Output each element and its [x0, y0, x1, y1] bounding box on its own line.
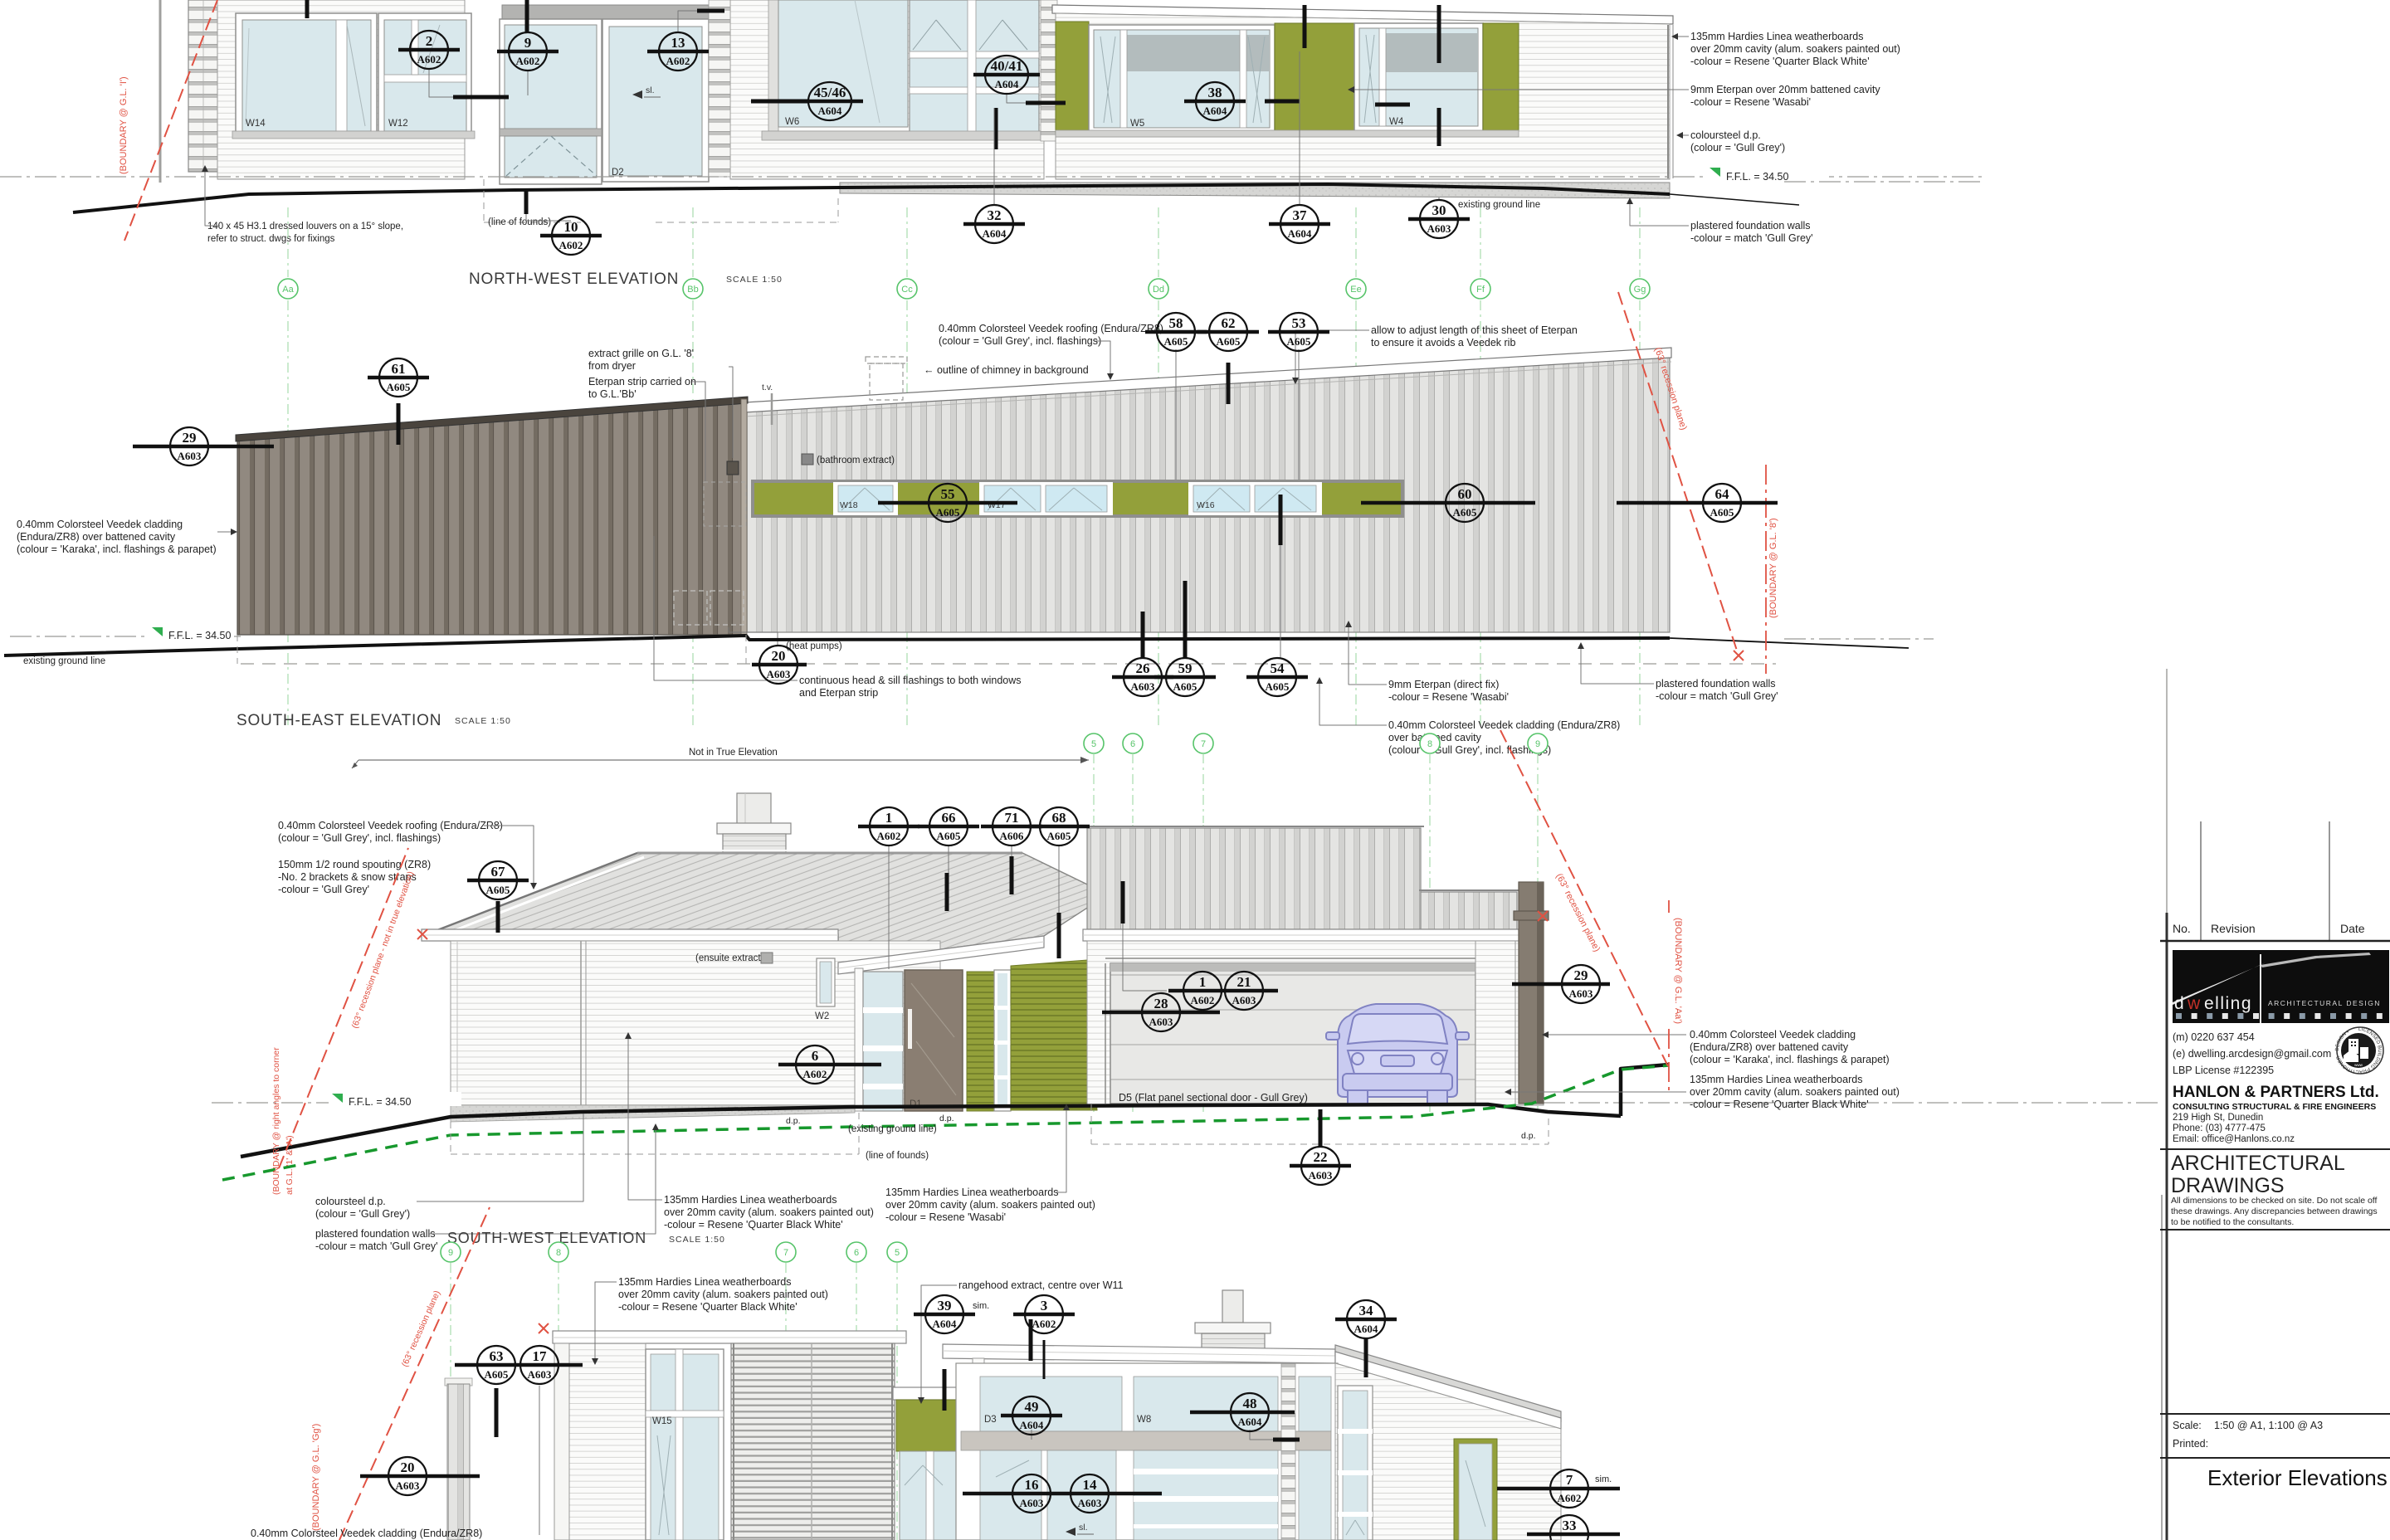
svg-text:A602: A602 — [516, 55, 540, 67]
svg-text:13: 13 — [671, 35, 685, 51]
svg-text:Not in True Elevation: Not in True Elevation — [689, 748, 778, 758]
svg-text:A602: A602 — [1191, 994, 1215, 1006]
svg-text:63: 63 — [490, 1348, 504, 1364]
svg-text:3: 3 — [1041, 1298, 1048, 1313]
svg-text:0.40mm Colorsteel Veedek cladd: 0.40mm Colorsteel Veedek cladding — [17, 519, 183, 530]
svg-text:219 High St, Dunedin: 219 High St, Dunedin — [2173, 1113, 2263, 1123]
svg-text:(BOUNDARY @ G.L. '8'): (BOUNDARY @ G.L. '8') — [1768, 518, 1778, 618]
svg-text:(BOUNDARY @ right angles to co: (BOUNDARY @ right angles to corner — [271, 1047, 281, 1195]
svg-text:(colour = 'Gull Grey', incl. f: (colour = 'Gull Grey', incl. flashings) — [939, 335, 1101, 347]
svg-text:Dd: Dd — [1153, 285, 1164, 295]
svg-text:135mm Hardies Linea weatherboa: 135mm Hardies Linea weatherboards — [664, 1194, 836, 1206]
svg-text:0.40mm Colorsteel Veedek cladd: 0.40mm Colorsteel Veedek cladding (Endur… — [251, 1528, 482, 1539]
svg-text:A605: A605 — [1173, 680, 1197, 693]
svg-text:d.p.: d.p. — [786, 1116, 801, 1126]
svg-text:F.F.L. = 34.50: F.F.L. = 34.50 — [168, 630, 231, 641]
svg-text:A604: A604 — [995, 78, 1019, 90]
svg-text:5: 5 — [895, 1248, 900, 1258]
svg-text:6: 6 — [1130, 739, 1135, 749]
svg-text:d.p.: d.p. — [939, 1114, 954, 1123]
svg-text:8: 8 — [1427, 739, 1432, 749]
svg-text:Cc: Cc — [901, 285, 913, 295]
svg-text:over 20mm cavity (alum. soaker: over 20mm cavity (alum. soakers painted … — [1690, 43, 1900, 55]
svg-text:A603: A603 — [178, 450, 202, 462]
svg-text:67: 67 — [491, 864, 506, 880]
svg-text:21: 21 — [1237, 974, 1251, 990]
svg-text:A603: A603 — [396, 1479, 420, 1492]
svg-text:d: d — [2174, 994, 2185, 1013]
svg-text:-colour = Resene 'Wasabi': -colour = Resene 'Wasabi' — [885, 1211, 1006, 1223]
svg-text:www: www — [2354, 1063, 2363, 1067]
svg-text:No.: No. — [2173, 922, 2191, 935]
svg-text:to ensure it avoids a Veedek r: to ensure it avoids a Veedek rib — [1371, 337, 1515, 348]
svg-text:(colour = 'Gull Grey'): (colour = 'Gull Grey') — [1690, 142, 1785, 154]
svg-text:16: 16 — [1025, 1477, 1039, 1493]
svg-text:A605: A605 — [1217, 335, 1241, 348]
svg-text:Phone: (03) 4777-475: Phone: (03) 4777-475 — [2173, 1123, 2266, 1133]
svg-text:A605: A605 — [485, 1368, 509, 1381]
svg-text:A603: A603 — [1232, 994, 1256, 1006]
svg-text:Eterpan strip carried on: Eterpan strip carried on — [588, 376, 696, 387]
svg-text:A602: A602 — [877, 830, 901, 842]
svg-text:(existing ground line): (existing ground line) — [848, 1124, 937, 1134]
svg-text:DRAWINGS: DRAWINGS — [2171, 1174, 2285, 1197]
svg-text:-colour = Resene 'Quarter Blac: -colour = Resene 'Quarter Black White' — [1690, 56, 1870, 67]
svg-text:A604: A604 — [983, 227, 1007, 240]
svg-text:existing ground line: existing ground line — [1458, 200, 1540, 210]
svg-text:coloursteel d.p.: coloursteel d.p. — [315, 1196, 386, 1207]
svg-text:A604: A604 — [933, 1318, 957, 1330]
svg-text:14: 14 — [1083, 1477, 1098, 1493]
svg-text:SOUTH-WEST ELEVATION: SOUTH-WEST ELEVATION — [447, 1230, 646, 1246]
svg-text:SOUTH-EAST ELEVATION: SOUTH-EAST ELEVATION — [237, 712, 441, 729]
svg-text:0.40mm Colorsteel Veedek cladd: 0.40mm Colorsteel Veedek cladding (Endur… — [1388, 719, 1620, 731]
svg-text:-colour = match 'Gull Grey': -colour = match 'Gull Grey' — [1690, 232, 1813, 244]
svg-text:SCALE 1:50: SCALE 1:50 — [669, 1235, 725, 1245]
svg-text:(colour = 'Gull Grey', incl. f: (colour = 'Gull Grey', incl. flashings) — [1388, 744, 1551, 756]
svg-text:A602: A602 — [417, 53, 441, 66]
svg-text:coloursteel d.p.: coloursteel d.p. — [1690, 129, 1761, 141]
svg-text:5: 5 — [1091, 739, 1096, 749]
svg-text:and Eterpan strip: and Eterpan strip — [799, 687, 878, 699]
svg-text:7: 7 — [783, 1248, 788, 1258]
svg-text:39: 39 — [938, 1298, 952, 1313]
svg-text:A605: A605 — [1453, 506, 1477, 519]
svg-text:22: 22 — [1314, 1149, 1328, 1165]
svg-text:A603: A603 — [1020, 1497, 1044, 1509]
svg-text:68: 68 — [1052, 810, 1066, 826]
svg-text:sl.: sl. — [646, 85, 655, 95]
svg-text:(e) dwelling.arcdesign@gmail.c: (e) dwelling.arcdesign@gmail.com — [2173, 1048, 2331, 1060]
svg-text:NORTH-WEST ELEVATION: NORTH-WEST ELEVATION — [469, 270, 679, 288]
svg-text:32: 32 — [988, 207, 1002, 223]
svg-text:-colour = Resene 'Wasabi': -colour = Resene 'Wasabi' — [1690, 96, 1811, 108]
svg-text:33: 33 — [1563, 1518, 1577, 1533]
svg-text:A602: A602 — [1558, 1492, 1582, 1504]
svg-text:135mm Hardies Linea weatherboa: 135mm Hardies Linea weatherboards — [885, 1187, 1058, 1198]
svg-text:17: 17 — [533, 1348, 548, 1364]
svg-text:71: 71 — [1005, 810, 1019, 826]
svg-text:Aa: Aa — [282, 285, 294, 295]
svg-text:-colour = 'Gull Grey': -colour = 'Gull Grey' — [278, 884, 369, 895]
svg-text:ARCHITECTURAL DESIGN: ARCHITECTURAL DESIGN — [2268, 999, 2381, 1007]
svg-text:A604: A604 — [1288, 227, 1312, 240]
svg-text:(Endura/ZR8) over battened cav: (Endura/ZR8) over battened cavity — [17, 531, 176, 543]
svg-text:0.40mm Colorsteel Veedek cladd: 0.40mm Colorsteel Veedek cladding — [1690, 1029, 1856, 1040]
svg-text:10: 10 — [564, 219, 578, 235]
svg-text:W5: W5 — [1130, 119, 1144, 129]
svg-text:F.F.L. = 34.50: F.F.L. = 34.50 — [349, 1096, 411, 1108]
svg-text:A605: A605 — [936, 506, 960, 519]
svg-text:(colour = 'Karaka', incl. flas: (colour = 'Karaka', incl. flashings & pa… — [1690, 1054, 1890, 1065]
svg-text:66: 66 — [942, 810, 956, 826]
svg-text:Printed:: Printed: — [2173, 1438, 2208, 1450]
svg-text:6: 6 — [854, 1248, 859, 1258]
svg-text:A603: A603 — [1078, 1497, 1102, 1509]
svg-text:CONSULTING STRUCTURAL & FIRE E: CONSULTING STRUCTURAL & FIRE ENGINEERS — [2173, 1102, 2376, 1112]
svg-text:plastered foundation walls: plastered foundation walls — [1690, 220, 1811, 231]
svg-text:59: 59 — [1178, 660, 1193, 676]
svg-text:continuous head & sill flashin: continuous head & sill flashings to both… — [799, 675, 1022, 686]
svg-text:W18: W18 — [840, 500, 858, 510]
svg-text:over 20mm cavity (alum. soaker: over 20mm cavity (alum. soakers painted … — [1690, 1086, 1900, 1098]
svg-text:sim.: sim. — [973, 1301, 989, 1311]
svg-text:(colour = 'Karaka', incl. flas: (colour = 'Karaka', incl. flashings & pa… — [17, 543, 217, 555]
svg-text:sim.: sim. — [1595, 1474, 1612, 1484]
svg-text:20: 20 — [401, 1460, 415, 1475]
svg-text:(line of founds): (line of founds) — [488, 217, 551, 227]
svg-text:A604: A604 — [1354, 1323, 1378, 1335]
svg-text:d.p.: d.p. — [1521, 1131, 1536, 1141]
svg-text:55: 55 — [941, 486, 955, 502]
svg-text:9mm Eterpan over 20mm battened: 9mm Eterpan over 20mm battened cavity — [1690, 84, 1880, 95]
svg-text:A604: A604 — [1238, 1416, 1262, 1428]
svg-text:A605: A605 — [1164, 335, 1188, 348]
svg-text:D5 (Flat panel sectional door: D5 (Flat panel sectional door - Gull Gre… — [1119, 1092, 1308, 1104]
svg-text:140 x 45 H3.1 dressed louvers: 140 x 45 H3.1 dressed louvers on a 15° s… — [207, 222, 403, 231]
svg-text:Scale:: Scale: — [2173, 1420, 2202, 1431]
svg-text:A605: A605 — [1266, 680, 1290, 693]
svg-text:A604: A604 — [818, 105, 842, 117]
svg-text:(BOUNDARY @ G.L. 'I'): (BOUNDARY @ G.L. 'I') — [119, 76, 129, 174]
svg-text:w: w — [2187, 994, 2202, 1013]
svg-text:-colour = Resene 'Quarter Blac: -colour = Resene 'Quarter Black White' — [1690, 1099, 1869, 1110]
svg-text:Date: Date — [2340, 922, 2365, 935]
svg-text:W16: W16 — [1197, 500, 1215, 510]
svg-text:A602: A602 — [803, 1068, 827, 1080]
svg-text:A603: A603 — [1569, 987, 1593, 1000]
svg-text:A602: A602 — [559, 239, 583, 251]
svg-text:-colour = Resene 'Wasabi': -colour = Resene 'Wasabi' — [1388, 691, 1509, 703]
svg-text:7: 7 — [1566, 1472, 1573, 1488]
svg-text:58: 58 — [1169, 315, 1183, 331]
svg-text:plastered foundation walls: plastered foundation walls — [1656, 678, 1776, 690]
svg-text:A602: A602 — [1032, 1318, 1056, 1330]
svg-text:9: 9 — [524, 35, 532, 51]
svg-text:Gg: Gg — [1634, 285, 1646, 295]
svg-text:A605: A605 — [486, 884, 510, 896]
svg-text:A603: A603 — [1149, 1016, 1173, 1028]
svg-text:64: 64 — [1715, 486, 1730, 502]
svg-text:at G.L. '1' & 'A'): at G.L. '1' & 'A') — [285, 1135, 295, 1195]
svg-text:LBP License #122395: LBP License #122395 — [2173, 1065, 2274, 1076]
svg-text:1: 1 — [1199, 974, 1207, 990]
svg-text:(ensuite extract): (ensuite extract) — [695, 953, 764, 963]
svg-text:SCALE 1:50: SCALE 1:50 — [726, 275, 783, 285]
svg-text:W12: W12 — [388, 119, 408, 129]
svg-text:29: 29 — [183, 430, 197, 446]
svg-text:over 20mm cavity (alum. soaker: over 20mm cavity (alum. soakers painted … — [618, 1289, 828, 1300]
svg-text:refer to struct. dwgs for fixi: refer to struct. dwgs for fixings — [207, 234, 335, 244]
svg-text:Exterior Elevations: Exterior Elevations — [2207, 1465, 2388, 1490]
svg-text:9: 9 — [448, 1248, 453, 1258]
svg-text:2: 2 — [426, 33, 433, 49]
svg-text:All dimensions to be checked o: All dimensions to be checked on site. Do… — [2171, 1196, 2378, 1206]
svg-text:(m) 0220 637 454: (m) 0220 637 454 — [2173, 1031, 2255, 1043]
svg-text:Ee: Ee — [1350, 285, 1361, 295]
svg-text:t.v.: t.v. — [762, 383, 773, 392]
svg-text:D2: D2 — [612, 168, 624, 178]
svg-text:49: 49 — [1025, 1399, 1039, 1415]
svg-text:(line of founds): (line of founds) — [866, 1151, 929, 1161]
svg-text:W4: W4 — [1389, 117, 1404, 127]
svg-text:Email: office@Hanlons.co.nz: Email: office@Hanlons.co.nz — [2173, 1134, 2295, 1144]
svg-text:135mm Hardies Linea weatherboa: 135mm Hardies Linea weatherboards — [1690, 31, 1863, 42]
svg-text:W14: W14 — [246, 119, 266, 129]
svg-text:45/46: 45/46 — [814, 85, 846, 100]
svg-text:0.40mm Colorsteel Veedek roofi: 0.40mm Colorsteel Veedek roofing (Endura… — [939, 323, 1163, 334]
svg-text:existing ground line: existing ground line — [23, 656, 105, 666]
svg-text:SCALE 1:50: SCALE 1:50 — [455, 716, 511, 726]
svg-text:37: 37 — [1293, 207, 1308, 223]
svg-text:150mm 1/2 round spouting (ZR8): 150mm 1/2 round spouting (ZR8) — [278, 859, 431, 870]
svg-text:-colour = match 'Gull Grey': -colour = match 'Gull Grey' — [1656, 690, 1778, 702]
svg-text:30: 30 — [1432, 202, 1446, 218]
svg-text:over 20mm cavity (alum. soaker: over 20mm cavity (alum. soakers painted … — [664, 1206, 874, 1218]
svg-text:38: 38 — [1208, 85, 1222, 100]
svg-text:A606: A606 — [1000, 830, 1024, 842]
svg-text:135mm Hardies Linea weatherboa: 135mm Hardies Linea weatherboards — [1690, 1074, 1862, 1085]
svg-text:-colour = Resene 'Quarter Blac: -colour = Resene 'Quarter Black White' — [664, 1219, 843, 1231]
svg-text:-colour = Resene 'Quarter Blac: -colour = Resene 'Quarter Black White' — [618, 1301, 797, 1313]
svg-text:1: 1 — [885, 810, 893, 826]
svg-text:28: 28 — [1154, 996, 1168, 1011]
svg-text:Ff: Ff — [1476, 285, 1485, 295]
svg-text:53: 53 — [1292, 315, 1306, 331]
svg-text:34: 34 — [1359, 1303, 1374, 1318]
svg-text:A605: A605 — [1047, 830, 1071, 842]
svg-text:135mm Hardies Linea weatherboa: 135mm Hardies Linea weatherboards — [618, 1276, 791, 1288]
svg-text:over 20mm cavity (alum. soaker: over 20mm cavity (alum. soakers painted … — [885, 1199, 1095, 1211]
svg-text:HANLON & PARTNERS Ltd.: HANLON & PARTNERS Ltd. — [2173, 1084, 2379, 1101]
svg-text:(BOUNDARY @ G.L. 'Aa'): (BOUNDARY @ G.L. 'Aa') — [1673, 918, 1683, 1024]
svg-text:elling: elling — [2204, 994, 2252, 1013]
svg-text:← outline of chimney in backgr: ← outline of chimney in background — [924, 364, 1089, 376]
svg-text:A604: A604 — [1020, 1419, 1044, 1431]
svg-text:Revision: Revision — [2211, 922, 2256, 935]
svg-text:F.F.L. = 34.50: F.F.L. = 34.50 — [1726, 171, 1788, 183]
svg-text:W2: W2 — [815, 1011, 829, 1021]
svg-text:A603: A603 — [1427, 222, 1451, 235]
svg-text:26: 26 — [1136, 660, 1150, 676]
svg-text:40/41: 40/41 — [991, 58, 1023, 74]
svg-text:9: 9 — [1535, 739, 1540, 749]
svg-text:(heat pumps): (heat pumps) — [786, 641, 842, 651]
svg-text:48: 48 — [1243, 1396, 1257, 1411]
svg-text:from dryer: from dryer — [588, 360, 636, 372]
svg-text:plastered foundation walls: plastered foundation walls — [315, 1228, 436, 1240]
svg-text:9mm Eterpan (direct fix): 9mm Eterpan (direct fix) — [1388, 679, 1499, 690]
svg-text:8: 8 — [556, 1248, 561, 1258]
svg-text:these drawings. Any discrepanc: these drawings. Any discrepancies betwee… — [2171, 1206, 2378, 1216]
svg-text:extract grille on G.L. '8': extract grille on G.L. '8' — [588, 348, 694, 359]
svg-text:A603: A603 — [767, 668, 791, 680]
svg-text:A603: A603 — [528, 1368, 552, 1381]
svg-text:A602: A602 — [666, 55, 690, 67]
svg-text:1:50 @ A1, 1:100 @ A3: 1:50 @ A1, 1:100 @ A3 — [2214, 1420, 2323, 1431]
svg-text:sl.: sl. — [1079, 1523, 1088, 1533]
svg-text:to G.L.'Bb': to G.L.'Bb' — [588, 388, 637, 400]
svg-text:to be notified to the consulta: to be notified to the consultants. — [2171, 1217, 2294, 1227]
svg-text:A603: A603 — [1309, 1169, 1333, 1182]
svg-text:(BOUNDARY @ G.L. 'Gg'): (BOUNDARY @ G.L. 'Gg') — [311, 1424, 321, 1531]
svg-text:ARCHITECTURAL: ARCHITECTURAL — [2171, 1152, 2345, 1175]
svg-text:W8: W8 — [1137, 1415, 1151, 1425]
svg-text:W6: W6 — [785, 117, 799, 127]
svg-text:(bathroom extract): (bathroom extract) — [817, 456, 895, 465]
svg-text:A605: A605 — [1287, 335, 1311, 348]
svg-text:Bb: Bb — [687, 285, 698, 295]
svg-text:A604: A604 — [1203, 105, 1227, 117]
svg-text:A605: A605 — [387, 381, 411, 393]
svg-text:W15: W15 — [652, 1416, 672, 1426]
svg-text:(colour = 'Gull Grey'): (colour = 'Gull Grey') — [315, 1208, 410, 1220]
svg-text:0.40mm Colorsteel Veedek roofi: 0.40mm Colorsteel Veedek roofing (Endura… — [278, 820, 503, 831]
svg-text:6: 6 — [812, 1048, 819, 1064]
svg-text:7: 7 — [1201, 739, 1206, 749]
svg-text:D3: D3 — [984, 1415, 997, 1425]
svg-text:A603: A603 — [1131, 680, 1155, 693]
svg-text:allow to adjust length of this: allow to adjust length of this sheet of … — [1371, 324, 1578, 336]
svg-text:61: 61 — [392, 361, 406, 377]
svg-text:29: 29 — [1574, 967, 1588, 983]
svg-text:rangehood extract, centre over: rangehood extract, centre over W11 — [958, 1279, 1124, 1291]
svg-text:20: 20 — [772, 648, 786, 664]
svg-text:A605: A605 — [937, 830, 961, 842]
svg-text:(colour = 'Gull Grey', incl. f: (colour = 'Gull Grey', incl. flashings) — [278, 832, 441, 844]
svg-text:-colour = match 'Gull Grey': -colour = match 'Gull Grey' — [315, 1240, 438, 1252]
svg-text:(Endura/ZR8) over battened cav: (Endura/ZR8) over battened cavity — [1690, 1041, 1849, 1053]
svg-text:54: 54 — [1271, 660, 1285, 676]
svg-text:62: 62 — [1222, 315, 1236, 331]
svg-text:A605: A605 — [1710, 506, 1734, 519]
svg-text:60: 60 — [1458, 486, 1472, 502]
